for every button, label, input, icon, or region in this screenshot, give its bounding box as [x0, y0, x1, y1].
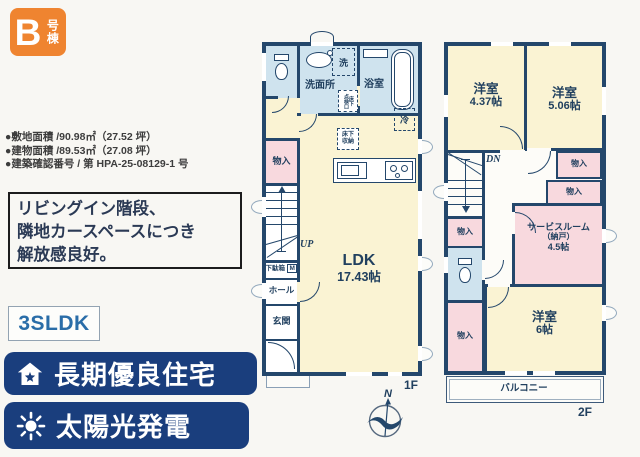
bath-label: 浴室 [354, 79, 394, 91]
window [532, 371, 556, 375]
closet-2f-c-label: 物入 [556, 159, 602, 168]
bathtub-icon [391, 49, 414, 110]
wall-segment [448, 150, 500, 153]
casement-swing [422, 257, 433, 271]
bath-counter-icon [363, 49, 388, 58]
bedroom-6-size: 6帖 [487, 324, 602, 337]
toilet-tank-icon [274, 54, 289, 61]
kitchen-sink-basin [341, 165, 359, 176]
underfloor-storage-label2: 収納 [342, 139, 354, 146]
window [444, 256, 448, 274]
wall-segment [266, 304, 300, 306]
casement-swing [606, 306, 617, 320]
house-star-icon [16, 360, 44, 388]
shoe-cabinet-m: M [287, 264, 297, 273]
entrance-label: 玄関 [266, 316, 297, 326]
casement-swing [422, 347, 433, 361]
unit-badge: B 号棟 [10, 8, 66, 56]
kitchen-sink-icon [337, 162, 367, 179]
wall-segment [266, 138, 300, 141]
entrance-porch [266, 376, 310, 388]
service-room-sub: （納戸） [520, 232, 597, 241]
stair-arrow-tail [461, 159, 470, 160]
ldk-label: LDK 17.43帖 [319, 252, 399, 285]
wall-segment [448, 216, 485, 219]
casement-swing [422, 140, 433, 154]
window [387, 372, 403, 376]
bedroom-506-label: 洋室 5.06帖 [527, 86, 602, 113]
property-specs: ●敷地面積 /90.98㎡（27.52 坪） ●建物面積 /89.53㎡（27.… [5, 131, 255, 172]
door-arc-bedroom-506 [528, 151, 551, 174]
wall-segment [297, 140, 300, 282]
sun-icon [16, 411, 46, 441]
burner-icon [390, 165, 397, 172]
bedroom-506-size: 5.06帖 [527, 100, 602, 113]
catchphrase-box: リビングイン階段、 隣地カースペースにつき 解放感良好。 [8, 192, 242, 269]
catchphrase-line1: リビングイン階段、 [17, 198, 233, 221]
window [548, 42, 572, 46]
wall-segment [266, 260, 300, 263]
door-arc-washroom [299, 114, 317, 132]
wall-segment [266, 278, 297, 280]
stair-arrow-down-icon [462, 206, 470, 213]
bedroom-6-name: 洋室 [487, 310, 602, 324]
toilet-tank-icon [458, 258, 472, 265]
banner-solar-power: 太陽光発電 [4, 402, 249, 449]
casement-swing [251, 200, 262, 214]
bedroom-437-label: 洋室 4.37帖 [448, 82, 524, 109]
window [602, 86, 606, 116]
window [262, 196, 266, 218]
stair-arrow-line [281, 192, 282, 252]
stair-arrow-up-icon [278, 186, 286, 193]
washroom-label: 洗面所 [298, 80, 342, 92]
window [262, 52, 266, 82]
balcony-label: バルコニー [447, 384, 601, 395]
wall-segment [448, 246, 482, 248]
underfloor-storage-label1: 床下 [342, 132, 354, 139]
closet-2f-d-label: 物入 [546, 187, 602, 196]
window [310, 42, 334, 46]
plan-type-label: 3SLDK [18, 312, 89, 336]
fridge-label: 冷 [400, 113, 409, 126]
wall-segment [525, 148, 527, 151]
banner-solar-power-label: 太陽光発電 [56, 407, 191, 444]
toilet-bowl-icon [275, 63, 288, 80]
wall-segment [512, 203, 602, 206]
closet-2f-a-label: 物入 [448, 227, 482, 236]
spec-site-area: ●敷地面積 /90.98㎡（27.52 坪） [5, 131, 255, 145]
wall-segment [512, 234, 515, 286]
compass: N [362, 390, 408, 448]
wall-segment [510, 284, 602, 287]
shoe-cabinet-label: 下駄箱 M [266, 264, 297, 273]
fridge-space: 冷 [394, 108, 415, 131]
window [418, 190, 422, 240]
burner-icon [395, 173, 400, 178]
window [444, 94, 448, 118]
casement-swing [251, 284, 262, 298]
compass-icon [362, 390, 408, 448]
bedroom-6-label: 洋室 6帖 [487, 310, 602, 337]
wall-segment [266, 339, 297, 341]
door-arc-toilet-2f [485, 260, 504, 279]
flyer-canvas: B 号棟 ●敷地面積 /90.98㎡（27.52 坪） ●建物面積 /89.53… [0, 0, 640, 457]
underfloor-hatch-label-right: 床下 [348, 96, 353, 106]
bedroom-506-name: 洋室 [527, 86, 602, 100]
plan-type-box: 3SLDK [8, 306, 100, 341]
balcony: バルコニー [446, 376, 604, 403]
closet-1f-label: 物入 [267, 156, 296, 166]
bathtub-inner [394, 52, 411, 107]
unit-badge-letter: B [15, 14, 42, 51]
underfloor-storage: 床下 収納 [337, 128, 359, 150]
floor2-label: 2F [578, 405, 592, 419]
ldk-name: LDK [319, 252, 399, 270]
window [345, 372, 373, 376]
underfloor-hatch: 床下 点検口 [338, 90, 358, 112]
stair-arrow-tail [277, 251, 286, 252]
floor-plan-2f: 洋室 4.37帖 洋室 5.06帖 物入 物入 物入 物入 サービスルーム （納… [444, 42, 606, 375]
laundry-space: 洗 [332, 48, 355, 76]
spec-building-area: ●建物面積 /89.53㎡（27.08 坪） [5, 145, 255, 159]
up-label: UP [300, 239, 313, 250]
window [504, 371, 528, 375]
bedroom-437-name: 洋室 [448, 82, 524, 96]
banner-long-term-quality: 長期優良住宅 [4, 352, 257, 395]
ldk-size: 17.43帖 [319, 270, 399, 284]
unit-badge-suffix: 号棟 [44, 19, 61, 45]
stair-arrow-line [465, 160, 466, 208]
window [490, 42, 514, 46]
casement-swing [606, 229, 617, 243]
door-arc-hall-ldk [300, 282, 320, 302]
window [262, 282, 266, 300]
catchphrase-line2: 隣地カースペースにつき [17, 221, 233, 244]
stove-icon [385, 161, 413, 180]
bedroom-437-size: 4.37帖 [448, 96, 524, 109]
banner-long-term-quality-label: 長期優良住宅 [54, 355, 216, 392]
catchphrase-line3: 解放感良好。 [17, 244, 233, 267]
burner-icon [401, 165, 408, 172]
toilet-bowl-icon [459, 267, 471, 283]
dn-label: DN [486, 154, 500, 165]
service-room-size: 4.5帖 [520, 242, 597, 252]
wall-segment [551, 148, 602, 151]
window [444, 182, 448, 202]
wall-segment [448, 300, 485, 303]
casement-swing [433, 185, 444, 199]
floor-plan-1f: 洗 床下 点検口 洗面所 浴室 冷 床下 収納 L [262, 42, 422, 376]
spec-confirmation-number: ●建築確認番号 / 第 HPA-25-08129-1 号 [5, 158, 255, 172]
wall-segment [297, 302, 300, 372]
hall-label: ホール [266, 286, 297, 296]
closet-2f-b-label: 物入 [448, 331, 482, 340]
laundry-label: 洗 [339, 56, 348, 69]
shoe-cabinet-name: 下駄箱 [266, 265, 286, 272]
